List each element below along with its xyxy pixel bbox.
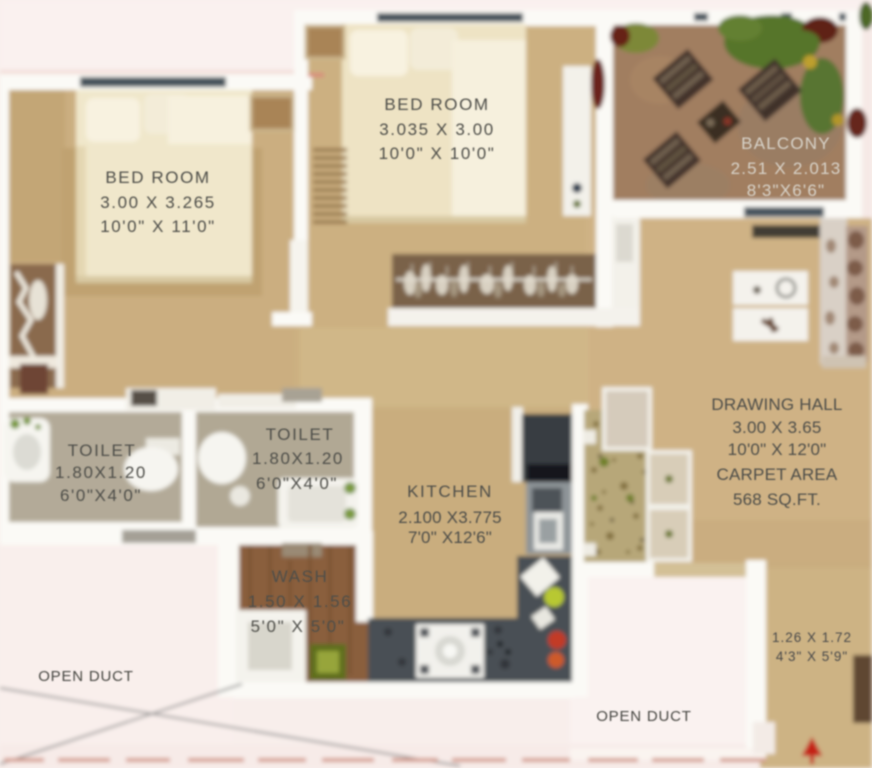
svg-text:TOILET: TOILET [266,425,335,444]
svg-text:1.80X1.20: 1.80X1.20 [55,463,147,482]
svg-text:568 SQ.FT.: 568 SQ.FT. [733,490,821,509]
svg-text:8'3"X6'6": 8'3"X6'6" [747,181,826,200]
svg-text:BED ROOM: BED ROOM [384,95,489,114]
svg-text:DRAWING HALL: DRAWING HALL [711,395,842,414]
svg-text:1.26 X 1.72: 1.26 X 1.72 [772,630,852,645]
svg-text:5'0" X 5'0": 5'0" X 5'0" [251,617,346,636]
svg-text:OPEN DUCT: OPEN DUCT [596,708,692,725]
svg-text:TOILET: TOILET [68,441,137,460]
svg-text:BED ROOM: BED ROOM [105,168,210,187]
svg-text:WASH: WASH [272,567,329,586]
svg-text:6'0"X4'0": 6'0"X4'0" [60,486,142,505]
svg-text:10'0" X 11'0": 10'0" X 11'0" [100,217,216,236]
svg-text:3.00 X 3.65: 3.00 X 3.65 [732,418,821,437]
svg-text:10'0" X 12'0": 10'0" X 12'0" [728,440,827,459]
svg-text:7'0" X12'6": 7'0" X12'6" [408,528,492,547]
svg-text:3.035 X 3.00: 3.035 X 3.00 [379,120,495,139]
svg-text:2.100 X3.775: 2.100 X3.775 [398,508,502,527]
svg-text:CARPET AREA: CARPET AREA [717,465,838,484]
svg-text:KITCHEN: KITCHEN [407,482,493,501]
svg-text:4'3" X 5'9": 4'3" X 5'9" [776,649,848,664]
svg-text:1.80X1.20: 1.80X1.20 [252,449,344,468]
svg-text:6'0"X4'0": 6'0"X4'0" [256,474,338,493]
svg-text:OPEN DUCT: OPEN DUCT [38,668,134,685]
svg-text:10'0" X 10'0": 10'0" X 10'0" [379,144,496,163]
svg-text:1.50 X 1.56: 1.50 X 1.56 [248,592,353,611]
svg-text:BALCONY: BALCONY [741,134,831,153]
svg-text:2.51 X 2.013: 2.51 X 2.013 [731,159,842,178]
svg-text:3.00 X 3.265: 3.00 X 3.265 [100,193,216,212]
